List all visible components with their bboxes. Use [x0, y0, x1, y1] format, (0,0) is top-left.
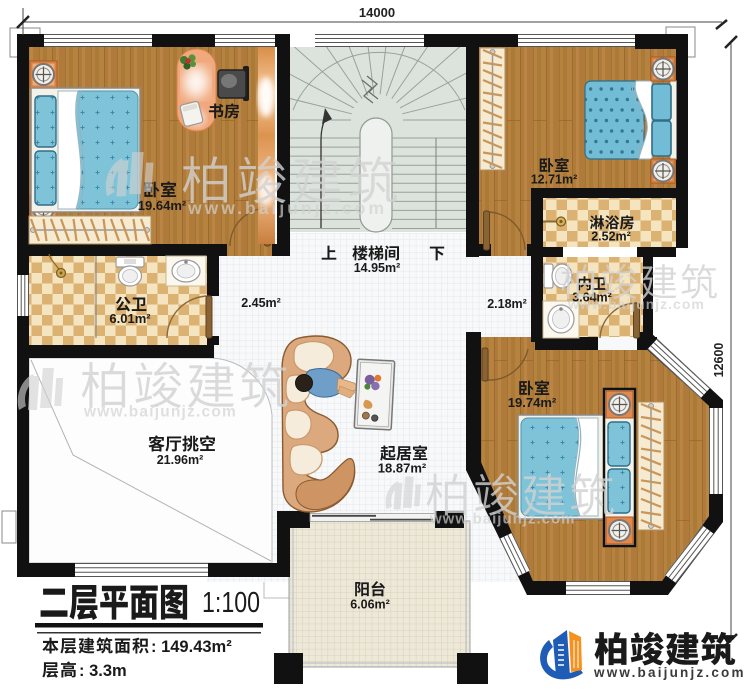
- svg-text:1:100: 1:100: [202, 587, 260, 619]
- svg-text:www.baijunjz.com: www.baijunjz.com: [83, 404, 237, 421]
- svg-text:www.baijunjz.com: www.baijunjz.com: [429, 511, 575, 528]
- svg-text:: 149.43m²: : 149.43m²: [151, 638, 232, 656]
- svg-text:12600: 12600: [712, 343, 726, 378]
- svg-text:2.18m²: 2.18m²: [487, 297, 527, 311]
- svg-text:19.64m²: 19.64m²: [138, 198, 187, 213]
- svg-text:21.96m²: 21.96m²: [157, 453, 204, 467]
- svg-text:6.01m²: 6.01m²: [109, 311, 151, 326]
- svg-text:: 3.3m: : 3.3m: [79, 662, 127, 680]
- svg-text:14000: 14000: [359, 5, 395, 20]
- svg-text:14.95m²: 14.95m²: [354, 261, 401, 275]
- svg-text:www.baijunjz.com: www.baijunjz.com: [567, 296, 705, 312]
- svg-text:19.74m²: 19.74m²: [508, 395, 557, 410]
- svg-text:www.baijunjz.com: www.baijunjz.com: [187, 198, 387, 218]
- svg-text:www.baijunjz.com: www.baijunjz.com: [593, 665, 746, 680]
- svg-text:12.71m²: 12.71m²: [531, 173, 578, 187]
- svg-text:2.52m²: 2.52m²: [591, 230, 631, 244]
- svg-text:6.06m²: 6.06m²: [350, 598, 390, 612]
- svg-text:18.87m²: 18.87m²: [378, 461, 427, 476]
- svg-text:2.45m²: 2.45m²: [241, 296, 281, 310]
